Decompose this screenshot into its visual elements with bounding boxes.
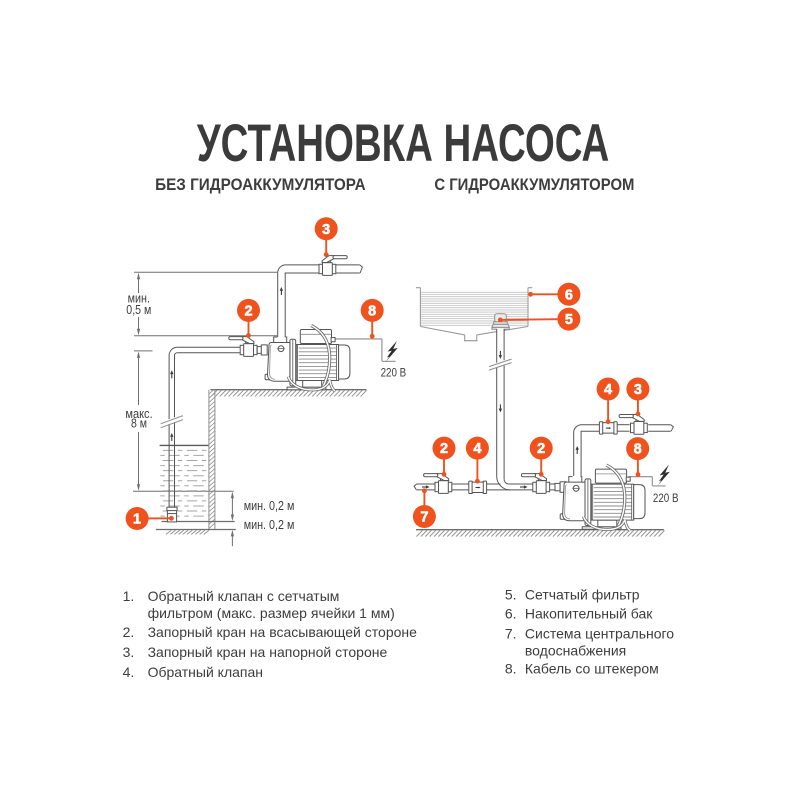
- svg-text:мин. 0,2 м: мин. 0,2 м: [244, 499, 295, 513]
- svg-text:8: 8: [634, 442, 642, 458]
- svg-text:5.: 5.: [505, 586, 517, 602]
- svg-text:Запорный кран на напорной стор: Запорный кран на напорной стороне: [148, 644, 388, 660]
- svg-text:0,5 м: 0,5 м: [126, 303, 151, 317]
- svg-text:Сетчатый фильтр: Сетчатый фильтр: [525, 586, 640, 602]
- svg-text:4: 4: [604, 382, 612, 398]
- svg-text:водоснабжения: водоснабжения: [525, 643, 626, 659]
- svg-text:1.: 1.: [123, 588, 135, 604]
- svg-text:8.: 8.: [505, 660, 517, 676]
- svg-text:7.: 7.: [505, 626, 517, 642]
- svg-text:2.: 2.: [123, 624, 135, 640]
- svg-text:3.: 3.: [123, 644, 135, 660]
- svg-text:Система центрального: Система центрального: [525, 626, 674, 642]
- svg-text:Накопительный бак: Накопительный бак: [525, 606, 653, 622]
- svg-text:7: 7: [420, 510, 428, 526]
- svg-text:2: 2: [537, 441, 545, 457]
- svg-text:Кабель со штекером: Кабель со штекером: [525, 660, 659, 676]
- svg-text:УСТАНОВКА НАСОСА: УСТАНОВКА НАСОСА: [197, 114, 610, 173]
- svg-text:6: 6: [565, 287, 573, 303]
- svg-text:4: 4: [473, 441, 481, 457]
- svg-text:2: 2: [244, 304, 252, 320]
- svg-text:БЕЗ ГИДРОАККУМУЛЯТОРА: БЕЗ ГИДРОАККУМУЛЯТОРА: [155, 176, 366, 194]
- svg-text:5: 5: [565, 312, 573, 328]
- svg-text:фильтром (макс. размер ячейки: фильтром (макс. размер ячейки 1 мм): [148, 605, 395, 621]
- svg-text:220 В: 220 В: [653, 493, 679, 505]
- svg-text:4.: 4.: [123, 664, 135, 680]
- svg-text:6.: 6.: [505, 606, 517, 622]
- svg-text:8: 8: [368, 304, 376, 320]
- svg-text:1: 1: [133, 512, 141, 528]
- svg-text:мин. 0,2 м: мин. 0,2 м: [244, 518, 295, 532]
- svg-text:8 м: 8 м: [131, 417, 147, 431]
- svg-text:Обратный клапан с сетчатым: Обратный клапан с сетчатым: [148, 588, 340, 604]
- svg-text:2: 2: [440, 441, 448, 457]
- svg-text:3: 3: [322, 222, 330, 238]
- svg-text:Запорный кран на всасывающей с: Запорный кран на всасывающей стороне: [148, 624, 418, 640]
- svg-text:Обратный клапан: Обратный клапан: [148, 664, 263, 680]
- svg-text:С ГИДРОАККУМУЛЯТОРОМ: С ГИДРОАККУМУЛЯТОРОМ: [434, 176, 634, 194]
- svg-text:3: 3: [634, 382, 642, 398]
- svg-text:220 В: 220 В: [381, 368, 407, 380]
